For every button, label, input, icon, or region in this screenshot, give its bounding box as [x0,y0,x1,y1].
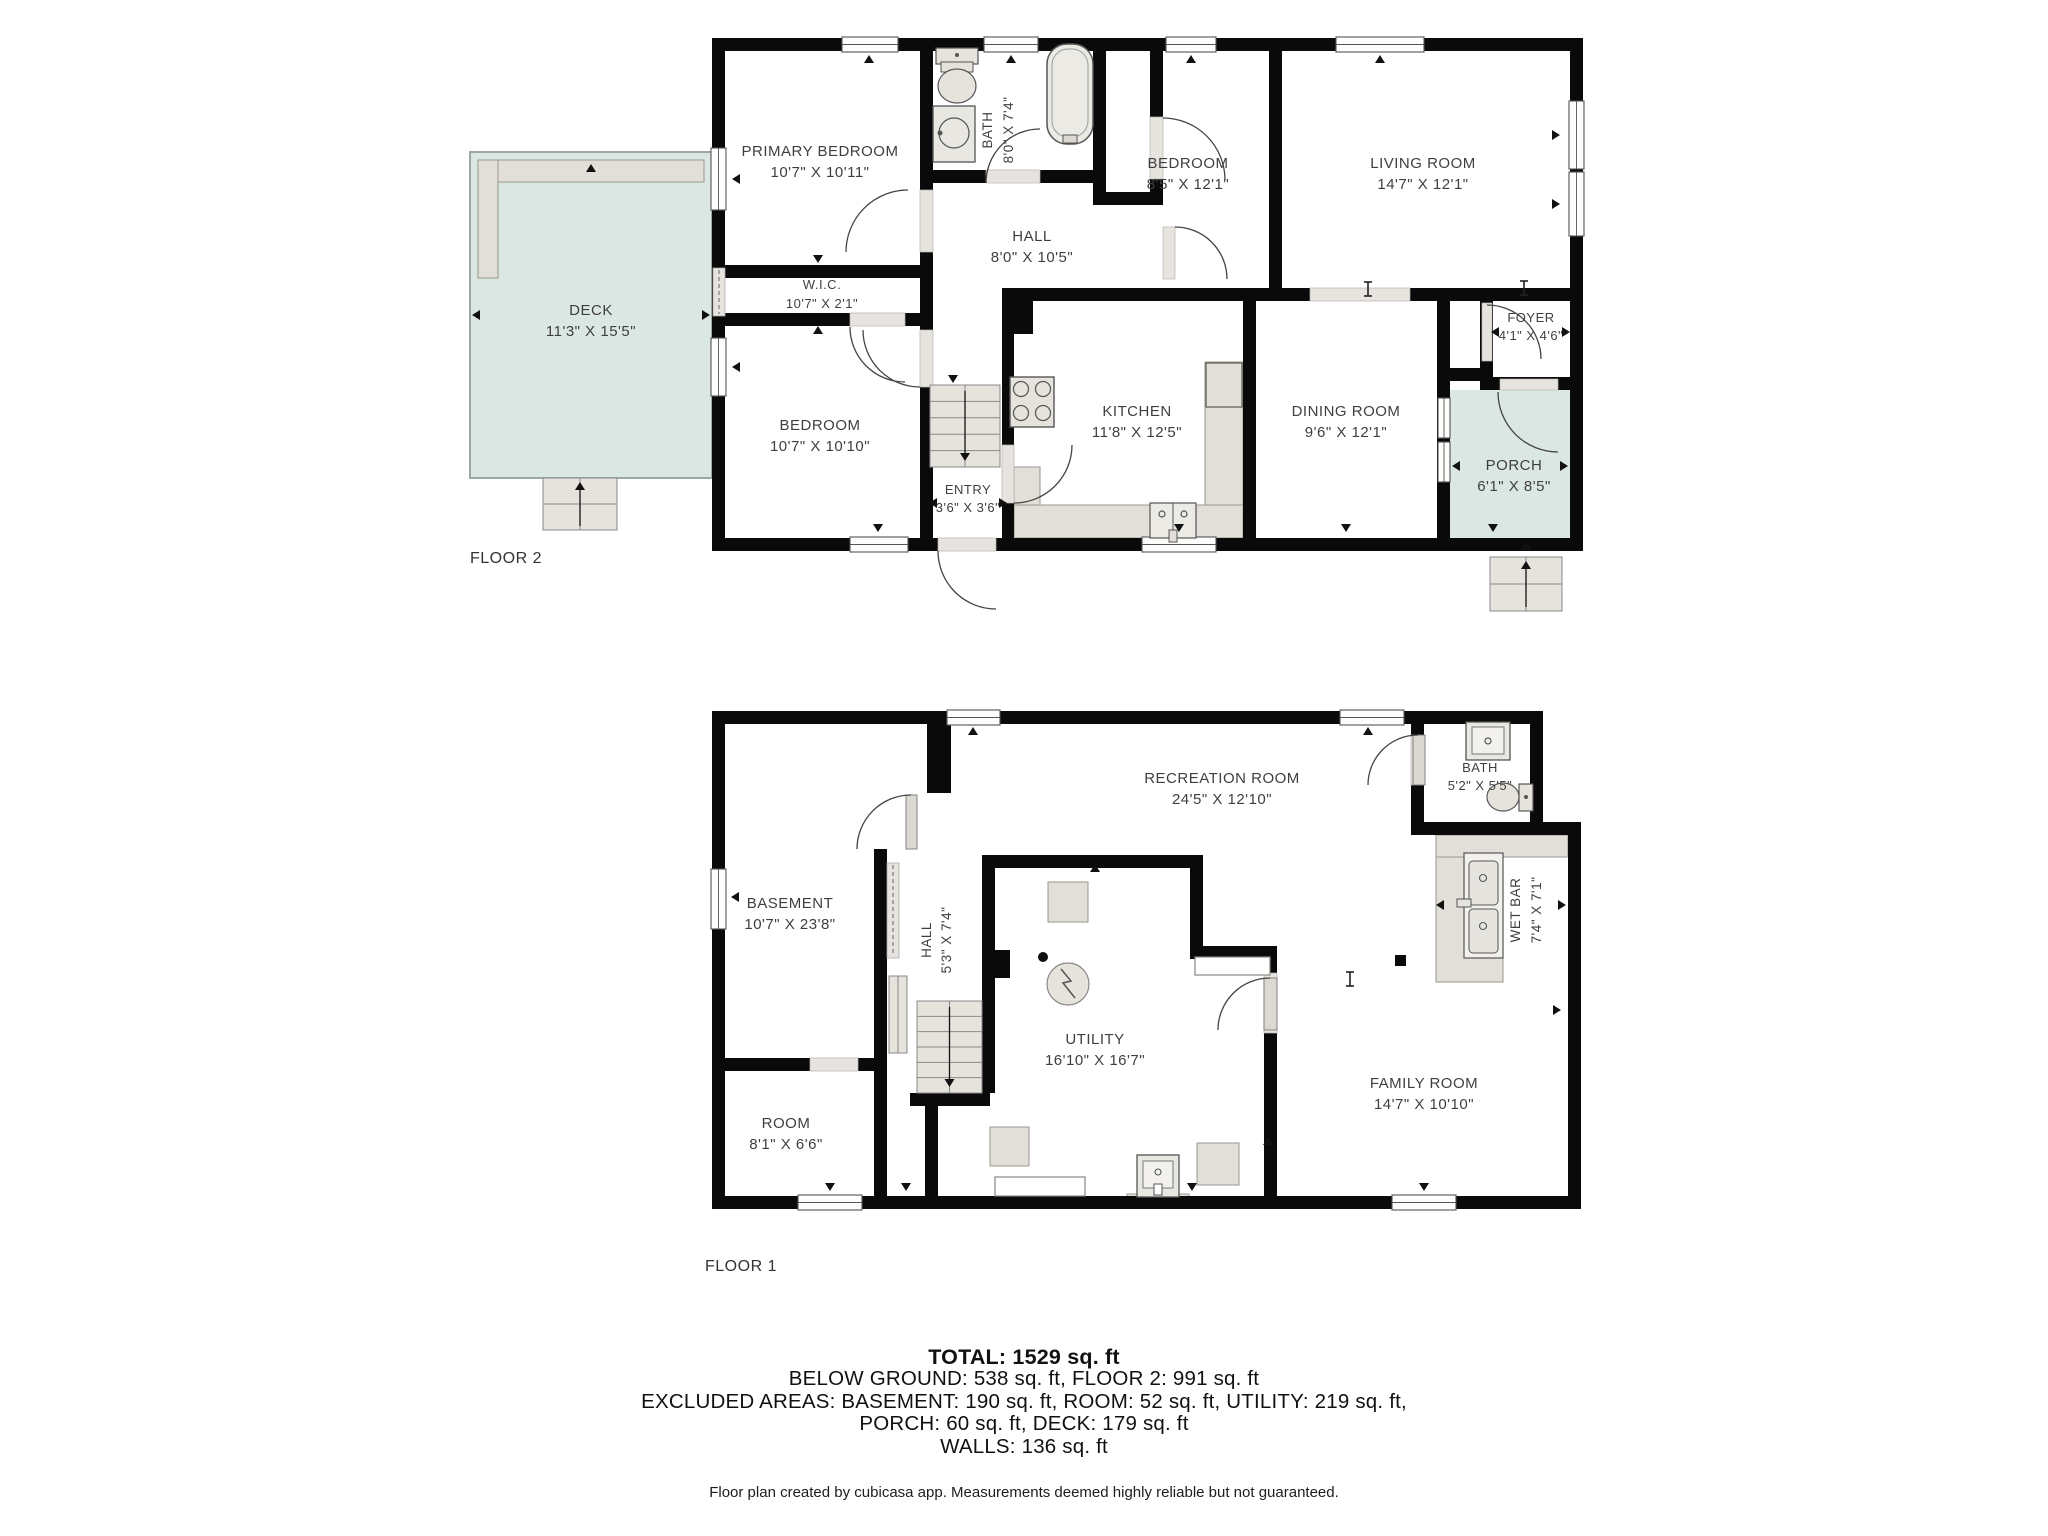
room-label-family-room: FAMILY ROOM [1370,1075,1478,1092]
wall [712,711,1424,724]
door-sill [1163,227,1175,279]
wall [1093,192,1163,205]
room-label-room: ROOM [762,1115,811,1132]
faucet [1457,899,1471,907]
door-sill [1310,288,1410,301]
door-sill [920,190,933,252]
room-label-3-6-x-3-6-: 3'6" X 3'6" [936,500,1001,515]
door-sill [1482,303,1492,361]
toilet-bowl [938,69,976,103]
room-label-primary-bedroom: PRIMARY BEDROOM [742,143,899,160]
utility-dot [1038,952,1048,962]
wall [927,724,951,793]
wall [874,849,887,1209]
wall [920,38,933,551]
door-sill [850,313,905,326]
area-summary: TOTAL: 1529 sq. ft BELOW GROUND: 538 sq.… [0,1346,2048,1458]
room-label-10-7-x-2-1-: 10'7" X 2'1" [786,296,858,311]
room-label-8-0-x-10-5-: 8'0" X 10'5" [991,249,1073,266]
appliance [990,1127,1029,1166]
door-leaf [1413,735,1425,785]
toilet-dot [955,53,959,57]
summary-below-ground: BELOW GROUND: 538 sq. ft, FLOOR 2: 991 s… [0,1368,2048,1390]
summary-walls: WALLS: 136 sq. ft [0,1436,2048,1458]
counter [478,160,498,278]
room-label-8-0-x-7-4-: 8'0" X 7'4" [1001,97,1016,164]
room-label-11-3-x-15-5-: 11'3" X 15'5" [546,323,636,340]
door-sill [1002,445,1014,503]
room-label-10-7-x-23-8-: 10'7" X 23'8" [744,916,835,933]
floor-area [725,724,1424,1196]
door-sill [1500,379,1558,390]
sink-basin [1472,727,1504,754]
room-label-w-i-c-: W.I.C. [803,277,841,292]
room-label-entry: ENTRY [945,482,991,497]
room-label-bath: BATH [980,111,995,148]
counter-shelf [1195,957,1270,975]
wall [1093,38,1106,205]
room-label-bedroom: BEDROOM [1147,155,1228,172]
room-label-kitchen: KITCHEN [1102,403,1171,420]
structural-post [1395,955,1406,966]
floor-plan-drawing: PRIMARY BEDROOM10'7" X 10'11"W.I.C.10'7"… [0,0,2048,1536]
wall [982,855,1203,868]
toilet-dot [1524,795,1528,799]
room-label-14-7-x-10-10-: 14'7" X 10'10" [1374,1096,1474,1113]
room-label-8-5-x-12-1-: 8'5" X 12'1" [1147,176,1229,193]
drain-slot [1154,1184,1162,1195]
faucet-dot [938,131,943,136]
room-label-foyer: FOYER [1507,310,1554,325]
wall [925,1106,938,1209]
room-label-porch: PORCH [1486,457,1543,474]
door-leaf [906,795,917,849]
wall [1002,288,1583,301]
wall [712,711,725,1209]
room-label-hall: HALL [919,922,934,958]
wall [1243,301,1256,551]
room-label-living-room: LIVING ROOM [1370,155,1476,172]
room-label-basement: BASEMENT [747,895,834,912]
room-label-hall: HALL [1012,228,1052,245]
room-label-recreation-room: RECREATION ROOM [1144,770,1300,787]
room-label-5-2-x-5-5-: 5'2" X 5'5" [1448,778,1513,793]
room-label-10-7-x-10-10-: 10'7" X 10'10" [770,438,870,455]
door-sill [938,538,996,551]
wall [1411,822,1581,835]
room-label-16-10-x-16-7-: 16'10" X 16'7" [1045,1052,1145,1069]
door-sill [920,330,933,387]
room-label-11-8-x-12-5-: 11'8" X 12'5" [1092,424,1182,441]
tub-faucet [1063,135,1077,143]
wall [1190,855,1203,959]
room-label-7-4-x-7-1-: 7'4" X 7'1" [1529,877,1544,944]
room-label-deck: DECK [569,302,613,319]
counter [1014,505,1243,538]
appliance [1048,882,1088,922]
disclaimer-text: Floor plan created by cubicasa app. Meas… [0,1484,2048,1501]
wall [1269,38,1282,301]
summary-porch-deck: PORCH: 60 sq. ft, DECK: 179 sq. ft [0,1413,2048,1435]
room-label-14-7-x-12-1-: 14'7" X 12'1" [1377,176,1468,193]
wall [910,1093,990,1106]
room-label-8-1-x-6-6-: 8'1" X 6'6" [749,1136,823,1153]
appliance [1197,1143,1239,1185]
room-label-floor-1: FLOOR 1 [705,1258,777,1275]
room-label-bedroom: BEDROOM [779,417,860,434]
floor-plan-page: PRIMARY BEDROOM10'7" X 10'11"W.I.C.10'7"… [0,0,2048,1536]
room-label-5-3-x-7-4-: 5'3" X 7'4" [939,907,954,974]
door-sill [810,1058,858,1071]
wall [712,1058,887,1071]
room-label-utility: UTILITY [1065,1031,1124,1048]
door-arc [938,551,996,609]
room-label-6-1-x-8-5-: 6'1" X 8'5" [1477,478,1551,495]
faucet [1169,530,1177,542]
room-label-9-6-x-12-1-: 9'6" X 12'1" [1305,424,1387,441]
room-label-24-5-x-12-10-: 24'5" X 12'10" [1172,791,1272,808]
structural-post [982,950,1010,978]
wall [1568,822,1581,1209]
room-label-wet-bar: WET BAR [1508,878,1523,943]
summary-total: TOTAL: 1529 sq. ft [0,1346,2048,1368]
fan-icon [1047,963,1089,1005]
door-sill [986,170,1040,183]
room-label-4-1-x-4-6-: 4'1" X 4'6" [1499,328,1564,343]
wall [1530,711,1543,835]
room-label-bath: BATH [1462,760,1498,775]
room-label-floor-2: FLOOR 2 [470,550,542,567]
room-label-10-7-x-10-11-: 10'7" X 10'11" [771,164,870,181]
door-leaf [1264,978,1277,1030]
wetbar-basin [1469,909,1498,953]
counter-shelf [995,1177,1085,1196]
wetbar-basin [1469,861,1498,905]
counter [1205,362,1243,505]
room-label-dining-room: DINING ROOM [1292,403,1401,420]
summary-excluded-areas: EXCLUDED AREAS: BASEMENT: 190 sq. ft, RO… [0,1391,2048,1413]
